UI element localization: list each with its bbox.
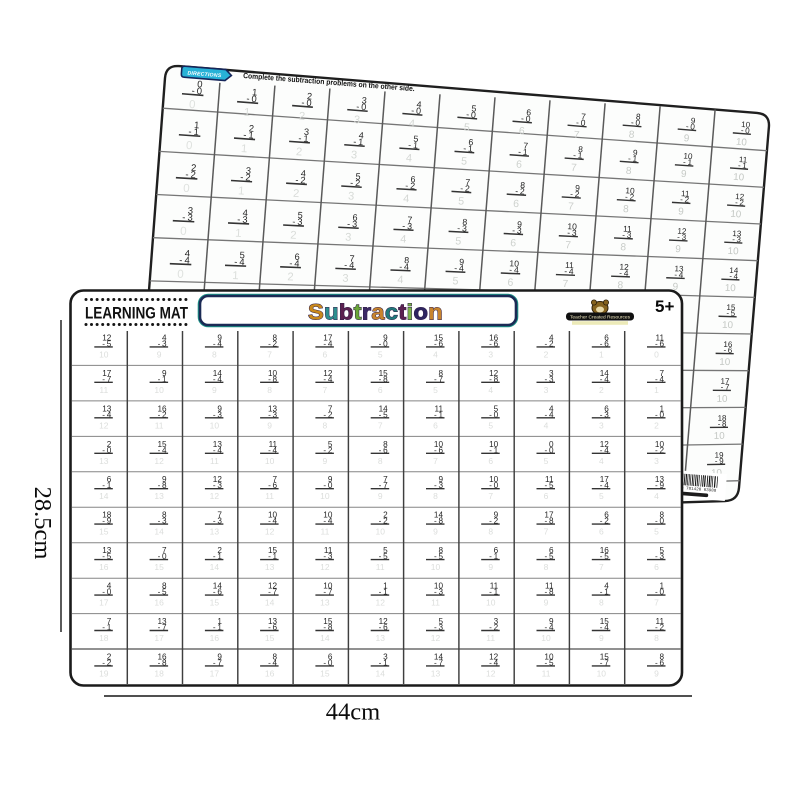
svg-text:14: 14 xyxy=(265,598,275,608)
svg-text:14: 14 xyxy=(210,562,220,572)
svg-text:10: 10 xyxy=(210,420,220,430)
svg-text:5: 5 xyxy=(488,420,493,430)
svg-text:12: 12 xyxy=(154,456,164,466)
svg-text:44cm: 44cm xyxy=(326,699,380,726)
svg-text:13: 13 xyxy=(99,456,109,466)
svg-text:9: 9 xyxy=(433,527,438,537)
svg-text:2: 2 xyxy=(298,110,305,122)
svg-text:3: 3 xyxy=(348,190,355,202)
svg-text:8: 8 xyxy=(488,527,493,537)
svg-text:7: 7 xyxy=(378,420,383,430)
svg-text:8: 8 xyxy=(654,633,659,643)
svg-text:5: 5 xyxy=(599,491,604,501)
svg-text:6: 6 xyxy=(510,237,517,249)
svg-text:9: 9 xyxy=(212,385,217,395)
svg-text:4: 4 xyxy=(403,193,410,205)
svg-text:11: 11 xyxy=(99,385,108,395)
svg-text:5: 5 xyxy=(458,195,465,207)
svg-text:17: 17 xyxy=(210,668,220,678)
svg-text:10: 10 xyxy=(320,491,330,501)
svg-text:4: 4 xyxy=(406,152,413,164)
svg-text:8: 8 xyxy=(544,562,549,572)
svg-text:8: 8 xyxy=(623,204,630,215)
svg-text:14: 14 xyxy=(320,633,330,643)
svg-text:15: 15 xyxy=(320,668,330,678)
svg-text:7: 7 xyxy=(573,130,580,141)
svg-text:16: 16 xyxy=(154,598,164,608)
svg-text:6: 6 xyxy=(433,420,438,430)
svg-text:11: 11 xyxy=(210,456,219,466)
svg-text:2: 2 xyxy=(544,349,549,359)
svg-text:9: 9 xyxy=(378,491,383,501)
svg-text:13: 13 xyxy=(431,668,441,678)
svg-text:6: 6 xyxy=(544,491,549,501)
svg-text:4: 4 xyxy=(544,420,549,430)
svg-text:10: 10 xyxy=(714,431,726,442)
svg-text:1: 1 xyxy=(232,270,239,282)
svg-text:10: 10 xyxy=(99,349,109,359)
svg-text:11: 11 xyxy=(320,527,329,537)
svg-text:4: 4 xyxy=(654,491,659,501)
svg-text:4: 4 xyxy=(408,118,415,130)
svg-text:12: 12 xyxy=(265,527,275,537)
svg-text:13: 13 xyxy=(375,633,385,643)
svg-text:3: 3 xyxy=(654,456,659,466)
svg-text:3: 3 xyxy=(351,149,358,161)
svg-text:16: 16 xyxy=(210,633,220,643)
svg-text:10: 10 xyxy=(733,172,745,184)
svg-text:13: 13 xyxy=(320,598,330,608)
svg-text:10: 10 xyxy=(727,246,739,258)
svg-text:16: 16 xyxy=(265,668,275,678)
svg-text:0: 0 xyxy=(183,182,190,195)
svg-text:7: 7 xyxy=(323,385,328,395)
svg-text:12: 12 xyxy=(486,668,496,678)
svg-text:10: 10 xyxy=(597,668,607,678)
svg-text:3: 3 xyxy=(544,385,549,395)
svg-text:3: 3 xyxy=(342,273,349,285)
svg-text:2: 2 xyxy=(287,271,294,283)
svg-text:12: 12 xyxy=(210,491,220,501)
svg-text:7: 7 xyxy=(488,491,493,501)
svg-text:2: 2 xyxy=(599,385,604,395)
svg-text:28.5cm: 28.5cm xyxy=(29,487,56,560)
svg-text:11: 11 xyxy=(486,633,495,643)
svg-text:9: 9 xyxy=(544,598,549,608)
svg-text:16: 16 xyxy=(99,562,109,572)
svg-text:LEARNING MAT: LEARNING MAT xyxy=(85,305,188,323)
svg-text:15: 15 xyxy=(154,562,164,572)
svg-text:0: 0 xyxy=(177,268,184,281)
svg-text:19: 19 xyxy=(99,668,109,678)
svg-text:13: 13 xyxy=(265,562,275,572)
svg-text:4: 4 xyxy=(599,456,604,466)
svg-text:6: 6 xyxy=(488,456,493,466)
svg-text:3: 3 xyxy=(488,349,493,359)
svg-text:7: 7 xyxy=(267,349,272,359)
svg-text:2: 2 xyxy=(296,146,303,158)
svg-text:6: 6 xyxy=(507,277,513,289)
svg-text:14: 14 xyxy=(375,668,385,678)
svg-text:1: 1 xyxy=(238,185,245,197)
svg-text:5: 5 xyxy=(461,155,468,167)
svg-text:5: 5 xyxy=(378,349,383,359)
svg-text:5: 5 xyxy=(433,385,438,395)
svg-text:3: 3 xyxy=(599,420,604,430)
svg-text:10: 10 xyxy=(736,137,748,149)
svg-text:5+: 5+ xyxy=(655,297,674,316)
svg-text:8: 8 xyxy=(433,491,438,501)
svg-text:10: 10 xyxy=(730,209,742,221)
svg-text:6: 6 xyxy=(516,159,523,171)
svg-text:18: 18 xyxy=(154,668,164,678)
svg-text:10: 10 xyxy=(154,385,164,395)
svg-text:7: 7 xyxy=(568,201,575,212)
svg-text:14: 14 xyxy=(99,491,109,501)
svg-text:8: 8 xyxy=(378,456,383,466)
svg-text:10: 10 xyxy=(541,633,551,643)
svg-text:4: 4 xyxy=(488,385,493,395)
svg-text:10: 10 xyxy=(375,527,385,537)
svg-text:6: 6 xyxy=(378,385,383,395)
svg-text:3: 3 xyxy=(353,114,360,126)
svg-text:Subtraction: Subtraction xyxy=(308,300,443,325)
svg-text:8: 8 xyxy=(599,598,604,608)
svg-text:7: 7 xyxy=(565,240,572,251)
svg-text:5: 5 xyxy=(455,235,462,247)
svg-text:8: 8 xyxy=(620,242,627,253)
svg-text:4: 4 xyxy=(433,349,438,359)
svg-text:6: 6 xyxy=(513,198,520,210)
svg-text:2: 2 xyxy=(654,420,659,430)
svg-text:6: 6 xyxy=(599,527,604,537)
svg-text:9: 9 xyxy=(267,420,272,430)
svg-text:10: 10 xyxy=(725,283,737,294)
svg-text:1: 1 xyxy=(243,107,250,119)
svg-text:5: 5 xyxy=(654,527,659,537)
svg-text:4: 4 xyxy=(400,233,407,245)
svg-text:10: 10 xyxy=(431,562,441,572)
svg-text:9: 9 xyxy=(488,562,493,572)
svg-text:9: 9 xyxy=(157,349,162,359)
svg-text:18: 18 xyxy=(99,633,109,643)
svg-text:0: 0 xyxy=(188,98,195,111)
svg-text:9: 9 xyxy=(654,668,659,678)
svg-text:11: 11 xyxy=(542,668,551,678)
svg-text:17: 17 xyxy=(99,598,109,608)
svg-text:5: 5 xyxy=(452,275,458,287)
svg-text:5: 5 xyxy=(463,121,470,133)
svg-text:8: 8 xyxy=(323,420,328,430)
svg-text:4: 4 xyxy=(397,274,404,286)
svg-text:10: 10 xyxy=(486,598,496,608)
svg-text:7: 7 xyxy=(654,598,659,608)
svg-text:Teacher Created Resources: Teacher Created Resources xyxy=(570,315,631,320)
svg-text:7: 7 xyxy=(571,163,578,174)
svg-text:8: 8 xyxy=(212,349,217,359)
svg-text:14: 14 xyxy=(154,527,164,537)
svg-text:7: 7 xyxy=(599,562,604,572)
svg-text:12: 12 xyxy=(375,598,385,608)
svg-text:8: 8 xyxy=(267,385,272,395)
svg-text:11: 11 xyxy=(155,420,164,430)
svg-text:1: 1 xyxy=(240,143,247,155)
svg-text:10: 10 xyxy=(719,357,731,368)
svg-text:2: 2 xyxy=(290,230,297,242)
svg-text:7: 7 xyxy=(562,279,568,290)
svg-text:12: 12 xyxy=(99,420,109,430)
svg-text:15: 15 xyxy=(265,633,275,643)
svg-text:15: 15 xyxy=(210,598,220,608)
svg-text:12: 12 xyxy=(320,562,330,572)
svg-text:9: 9 xyxy=(678,206,685,217)
svg-text:10: 10 xyxy=(717,394,729,405)
svg-text:0: 0 xyxy=(654,349,659,359)
svg-text:1: 1 xyxy=(235,228,242,240)
svg-text:10: 10 xyxy=(265,456,275,466)
svg-text:17: 17 xyxy=(154,633,164,643)
svg-text:3: 3 xyxy=(345,231,352,243)
svg-text:15: 15 xyxy=(99,527,109,537)
svg-text:10: 10 xyxy=(722,320,734,331)
svg-text:11: 11 xyxy=(265,491,274,501)
svg-text:5: 5 xyxy=(544,456,549,466)
svg-text:6: 6 xyxy=(518,125,525,137)
svg-text:0: 0 xyxy=(180,225,187,238)
svg-text:6: 6 xyxy=(323,349,328,359)
svg-text:11: 11 xyxy=(431,598,440,608)
svg-text:9: 9 xyxy=(599,633,604,643)
svg-text:9: 9 xyxy=(675,244,682,255)
svg-text:13: 13 xyxy=(154,491,164,501)
svg-text:6: 6 xyxy=(654,562,659,572)
svg-text:8: 8 xyxy=(625,166,632,177)
svg-text:13: 13 xyxy=(210,527,220,537)
svg-text:2: 2 xyxy=(293,188,300,200)
svg-text:7: 7 xyxy=(544,527,549,537)
svg-text:7: 7 xyxy=(433,456,438,466)
svg-text:0: 0 xyxy=(186,139,193,152)
svg-text:1: 1 xyxy=(654,385,659,395)
svg-text:12: 12 xyxy=(431,633,441,643)
svg-text:1: 1 xyxy=(599,349,604,359)
svg-text:11: 11 xyxy=(376,562,385,572)
svg-text:9: 9 xyxy=(323,456,328,466)
